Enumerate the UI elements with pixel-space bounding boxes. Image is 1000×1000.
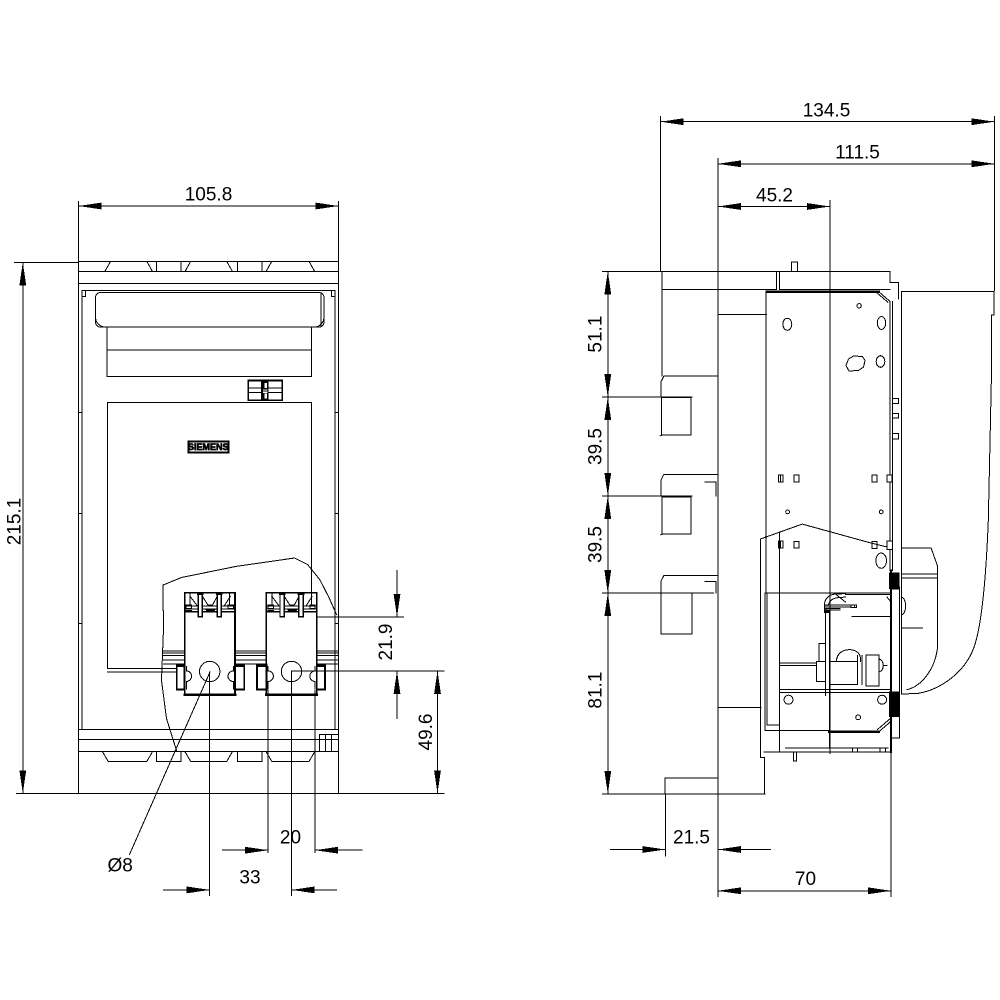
svg-text:20: 20 [280,828,301,849]
svg-text:81.1: 81.1 [586,672,607,709]
svg-text:39.5: 39.5 [586,526,607,563]
svg-text:33: 33 [239,868,260,889]
svg-text:Ø8: Ø8 [108,856,133,877]
svg-text:21.9: 21.9 [376,624,397,661]
svg-text:134.5: 134.5 [803,101,851,122]
svg-text:215.1: 215.1 [5,498,26,546]
svg-text:39.5: 39.5 [586,428,607,465]
svg-text:111.5: 111.5 [835,143,880,164]
svg-text:105.8: 105.8 [185,185,233,206]
svg-text:21.5: 21.5 [673,828,710,849]
svg-text:45.2: 45.2 [756,186,793,207]
svg-text:70: 70 [795,869,816,890]
svg-text:49.6: 49.6 [416,714,437,751]
svg-text:SIEMENS: SIEMENS [188,442,229,452]
svg-text:51.1: 51.1 [586,316,607,353]
